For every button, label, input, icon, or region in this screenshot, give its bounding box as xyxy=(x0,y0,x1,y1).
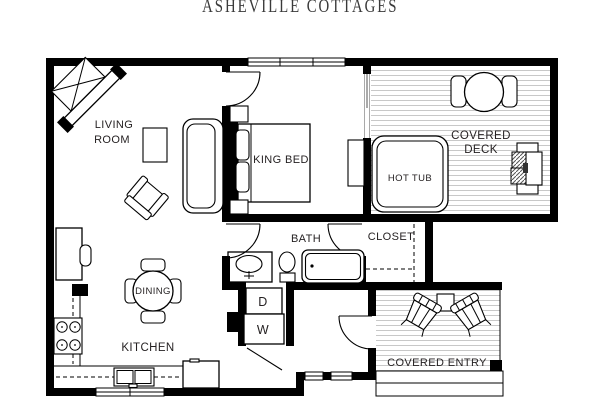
south-window-2 xyxy=(331,372,352,380)
bath-label: BATH xyxy=(291,233,321,245)
bathtub xyxy=(302,250,364,283)
coffee-table xyxy=(143,128,167,162)
south-window-1 xyxy=(305,372,323,380)
dryer-label: D xyxy=(258,295,267,309)
sofa xyxy=(183,119,223,213)
toilet xyxy=(279,252,295,282)
kitchen-window xyxy=(96,388,164,396)
floor-plan-page: ASHEVILLE COTTAGES xyxy=(0,0,600,400)
bath-door-swing xyxy=(226,224,260,258)
dresser xyxy=(348,140,364,186)
nightstand xyxy=(230,200,248,214)
covered-deck-label-2: DECK xyxy=(464,144,498,156)
deck-table xyxy=(451,73,517,112)
washer-label: W xyxy=(257,323,269,337)
kitchen-sink xyxy=(114,368,154,388)
sliding-glass-door xyxy=(365,74,370,138)
dining-chair xyxy=(141,311,165,323)
pillow xyxy=(236,162,249,192)
covered-entry-label: COVERED ENTRY xyxy=(387,357,487,369)
dining-label: DINING xyxy=(135,286,171,297)
kitchen-label: KITCHEN xyxy=(121,342,174,354)
pillow xyxy=(236,130,249,160)
floor-plan-drawing: ASHEVILLE COTTAGES xyxy=(0,0,600,400)
living-room-label-1: LIVING xyxy=(95,119,133,131)
entry-steps xyxy=(376,371,503,396)
front-door-swing xyxy=(339,316,372,349)
bedroom-door-swing xyxy=(226,72,260,106)
hot-tub-label: HOT TUB xyxy=(388,173,432,184)
king-bed-label: KING BED xyxy=(253,154,309,166)
desk-chair xyxy=(80,245,91,266)
range-stove xyxy=(54,318,82,354)
deck-chair xyxy=(502,76,517,107)
covered-deck-label-1: COVERED xyxy=(451,130,511,142)
page-title: ASHEVILLE COTTAGES xyxy=(202,0,398,16)
closet-label: CLOSET xyxy=(368,231,414,243)
deck-chair xyxy=(451,76,466,107)
laundry-door xyxy=(247,348,282,370)
desk xyxy=(56,228,91,280)
living-room-label-2: ROOM xyxy=(94,134,130,146)
armchair xyxy=(122,175,169,221)
bedroom-window xyxy=(248,58,345,66)
refrigerator xyxy=(183,359,219,388)
nightstand xyxy=(230,106,248,122)
dining-chair xyxy=(141,259,165,271)
